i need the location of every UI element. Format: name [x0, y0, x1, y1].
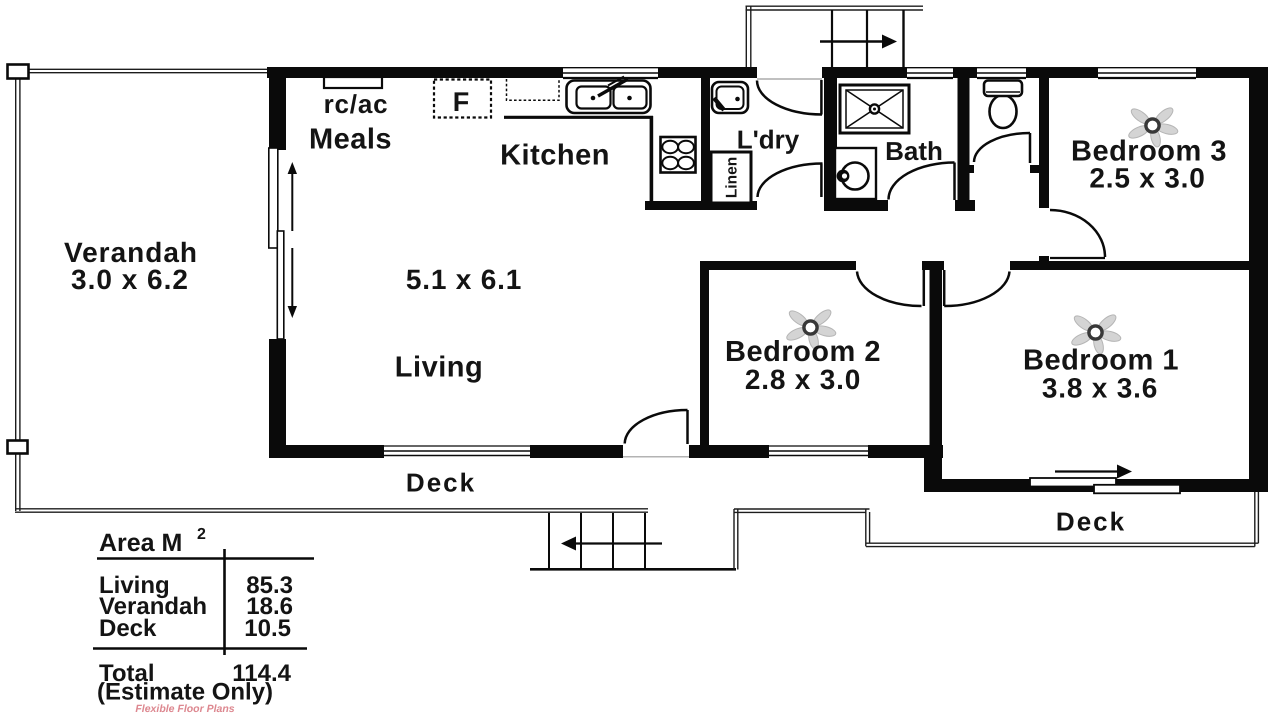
svg-text:Deck: Deck	[1056, 507, 1126, 537]
svg-text:2: 2	[197, 526, 206, 543]
svg-text:Kitchen: Kitchen	[500, 140, 610, 172]
svg-text:2.5 x 3.0: 2.5 x 3.0	[1089, 163, 1205, 194]
svg-text:L'dry: L'dry	[737, 125, 800, 155]
svg-text:Living: Living	[395, 352, 483, 384]
svg-text:Area M: Area M	[99, 529, 182, 557]
svg-text:(Estimate Only): (Estimate Only)	[97, 679, 273, 706]
svg-text:rc/ac: rc/ac	[324, 89, 389, 119]
svg-text:Bath: Bath	[885, 136, 943, 166]
svg-text:Deck: Deck	[406, 468, 476, 498]
svg-text:3.0 x 6.2: 3.0 x 6.2	[71, 264, 189, 295]
svg-text:5.1 x 6.1: 5.1 x 6.1	[406, 264, 522, 295]
svg-text:Linen: Linen	[724, 157, 741, 198]
svg-text:Flexible Floor Plans: Flexible Floor Plans	[135, 703, 234, 715]
svg-text:10.5: 10.5	[244, 615, 291, 642]
svg-text:Deck: Deck	[99, 615, 157, 642]
svg-text:2.8 x 3.0: 2.8 x 3.0	[745, 364, 861, 395]
svg-text:Meals: Meals	[309, 124, 392, 156]
svg-text:F: F	[453, 87, 470, 117]
svg-text:3.8 x 3.6: 3.8 x 3.6	[1042, 373, 1158, 404]
